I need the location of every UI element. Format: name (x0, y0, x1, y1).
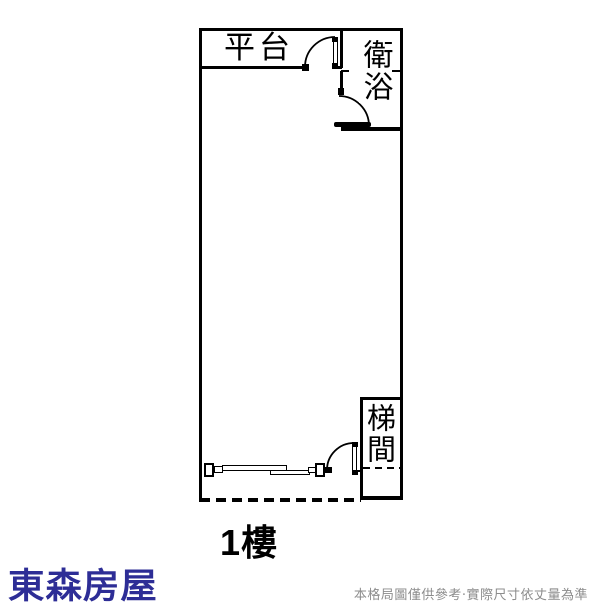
entrance-door-stop (325, 467, 332, 474)
room-label-stairwell: 梯間 (363, 403, 393, 465)
bottom-dashed-boundary (200, 498, 361, 502)
window-frame-right (315, 463, 325, 477)
wall-stairwell-top (360, 397, 402, 400)
platform-door-hinge-cap (332, 63, 338, 69)
stairwell-dashed-line (363, 467, 400, 470)
platform-door-arc (305, 37, 335, 67)
wall-bathroom-mid-stub-right (392, 70, 402, 73)
wall-bathroom-left-upper (340, 28, 343, 68)
door-swing-arcs (0, 0, 600, 600)
wall-endcap (302, 64, 309, 71)
room-label-platform: 平台 (224, 32, 294, 65)
floor-plan: 平台 衛浴 梯間 1樓 (0, 0, 600, 600)
room-label-bathroom: 衛浴 (359, 39, 391, 103)
wall-left (199, 28, 202, 502)
wall-entrance-stub (356, 470, 361, 473)
wall-right (400, 28, 403, 499)
bathroom-door-stop (338, 88, 345, 95)
floor-title: 1樓 (220, 514, 278, 566)
wall-platform-bottom (201, 66, 306, 69)
window-panel-lower (270, 470, 310, 476)
window-frame-left (204, 463, 214, 477)
brand-logo-text: 東森房屋 (8, 558, 158, 609)
entrance-door-hinge-cap (352, 442, 358, 447)
platform-door-hinge-cap (332, 37, 338, 42)
wall-bathroom-mid-stub-left (341, 70, 349, 73)
bathroom-door-leaf (334, 122, 371, 127)
wall-bathroom-bottom (341, 127, 402, 131)
disclaimer-text: 本格局圖僅供參考‧實際尺寸依丈量為準 (354, 584, 588, 603)
wall-stairwell-bottom (360, 496, 403, 500)
